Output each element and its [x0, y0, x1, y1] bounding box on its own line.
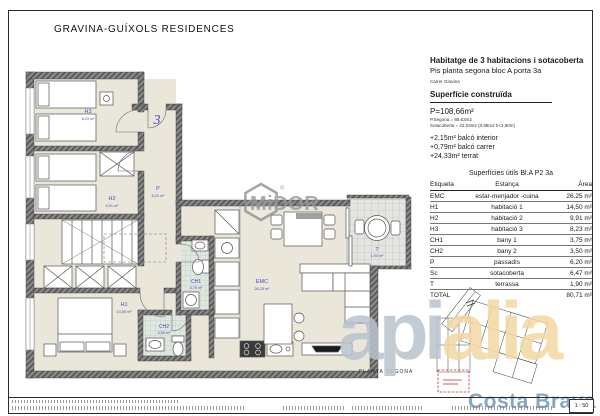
midor-bar	[296, 213, 322, 219]
extra-area: +2,15m² balcó interior	[430, 134, 592, 143]
room-label-ch2: CH2	[159, 324, 169, 330]
room-label-h1: H1	[120, 302, 127, 308]
cell-code: CH2	[430, 246, 466, 257]
cell-area: 26,25 m²	[548, 191, 592, 202]
table-row: Ppassadís6,20 m²	[430, 257, 592, 268]
table-row: H3habitació 38,23 m²	[430, 224, 592, 235]
cell-area: 14,50 m²	[548, 202, 592, 213]
extra-area: +0,79m² balcó carrer	[430, 143, 592, 152]
cell-room: passadís	[466, 257, 548, 268]
cell-room: estar-menjador -cuina	[466, 191, 548, 202]
footer-note-strip	[12, 400, 180, 403]
footer-credit-strip	[12, 406, 244, 410]
table-row: CH2bany 23,50 m²	[430, 246, 592, 257]
cell-area: 9,91 m²	[548, 213, 592, 224]
cell-room: sotacoberta	[466, 268, 548, 279]
room-area-ch2: 3,50 m²	[158, 331, 172, 335]
total-spacer	[466, 290, 548, 301]
built-area-detail: Sotacoberta = 22,03m2 (0,99m2 h<1,90m)	[430, 123, 592, 129]
cell-code: EMC	[430, 191, 466, 202]
areas-table-title: Superfícies útils Bl.A P2 3a	[430, 170, 592, 177]
table-row: EMCestar-menjador -cuina26,25 m²	[430, 191, 592, 202]
room-area-h1: 14,50 m²	[117, 310, 133, 314]
areas-table-header: Etiqueta Estança Àrea	[430, 179, 592, 191]
cell-room: habitació 2	[466, 213, 548, 224]
room-area-ch1: 3,75 m²	[190, 286, 204, 290]
cell-area: 8,23 m²	[548, 224, 592, 235]
cell-code: Sc	[430, 268, 466, 279]
table-row: H1habitació 114,50 m²	[430, 202, 592, 213]
footer-credit-strip	[352, 406, 424, 410]
cell-room: habitació 1	[466, 202, 548, 213]
room-label-emc: EMC	[256, 279, 268, 285]
table-row: Scsotacoberta6,47 m²	[430, 268, 592, 279]
cell-area: 3,50 m²	[548, 246, 592, 257]
plan-caption: PLANTA SEGONA	[359, 369, 414, 375]
table-total-row: TOTAL 80,71 m²	[430, 290, 592, 301]
areas-table: Etiqueta Estança Àrea EMCestar-menjador …	[430, 179, 592, 301]
unit-subheading: Pis planta segona bloc A porta 3a	[430, 66, 592, 76]
highlighted-unit-box	[438, 370, 469, 392]
cell-area: 3,75 m²	[548, 235, 592, 246]
room-label-h3: H3	[84, 109, 91, 115]
footer-credit-strip	[283, 406, 345, 410]
location-map	[437, 287, 549, 392]
midor-registered-icon: ®	[280, 185, 285, 192]
extra-area: +24,33m² terrat	[430, 152, 592, 161]
scale-label: 1 : 50	[569, 399, 594, 413]
cell-code: CH1	[430, 235, 466, 246]
total-area: 80,71 m²	[548, 290, 592, 301]
room-label-p: P	[156, 186, 160, 192]
cell-code: T	[430, 279, 466, 290]
cell-area: 1,90 m²	[548, 279, 592, 290]
cell-code: H3	[430, 224, 466, 235]
midor-watermark: MiDOR ®	[245, 184, 322, 220]
room-label-ch1: CH1	[191, 279, 201, 285]
unit-heading: Habitatge de 3 habitacions i sotacoberta	[430, 56, 592, 66]
cell-room: bany 1	[466, 235, 548, 246]
cell-code: H2	[430, 213, 466, 224]
built-area-title: Superfície construïda	[430, 90, 552, 103]
unit-street: Carrer Gravina	[430, 79, 592, 85]
room-label-h2: H2	[108, 196, 115, 202]
cell-code: P	[430, 257, 466, 268]
cell-area: 6,47 m²	[548, 268, 592, 279]
footer-divider	[8, 397, 593, 398]
cell-room: terrassa	[466, 279, 548, 290]
table-row: H2habitació 29,91 m²	[430, 213, 592, 224]
cell-room: habitació 3	[466, 224, 548, 235]
room-area-emc: 26,25 m²	[255, 287, 271, 291]
room-area-h2: 9,91 m²	[106, 204, 120, 208]
room-area-p: 6,20 m²	[152, 194, 166, 198]
page-title: GRAVINA-GUÍXOLS RESIDENCES	[54, 24, 235, 35]
unit-number-label: 3	[153, 113, 161, 128]
footer-credit-strip	[452, 406, 552, 410]
cell-code: H1	[430, 202, 466, 213]
col-header-code: Etiqueta	[430, 179, 466, 191]
col-header-area: Àrea	[548, 179, 592, 191]
unit-info-panel: Habitatge de 3 habitacions i sotacoberta…	[430, 56, 592, 301]
room-area-h3: 8,23 m²	[82, 117, 96, 121]
room-area-t: 1,90 m²	[371, 254, 385, 258]
table-row: CH1bany 13,75 m²	[430, 235, 592, 246]
plan-sheet: H3 8,23 m² H2 9,91 m² P 6,20 m² H1 14,50…	[0, 0, 600, 416]
cell-room: bany 2	[466, 246, 548, 257]
cell-area: 6,20 m²	[548, 257, 592, 268]
total-label: TOTAL	[430, 290, 466, 301]
built-area-total: P=108,66m²	[430, 107, 592, 117]
table-row: Tterrassa1,90 m²	[430, 279, 592, 290]
floor-plan: H3 8,23 m² H2 9,91 m² P 6,20 m² H1 14,50…	[26, 72, 413, 378]
col-header-room: Estança	[466, 179, 548, 191]
midor-text: MiDOR	[250, 193, 319, 215]
